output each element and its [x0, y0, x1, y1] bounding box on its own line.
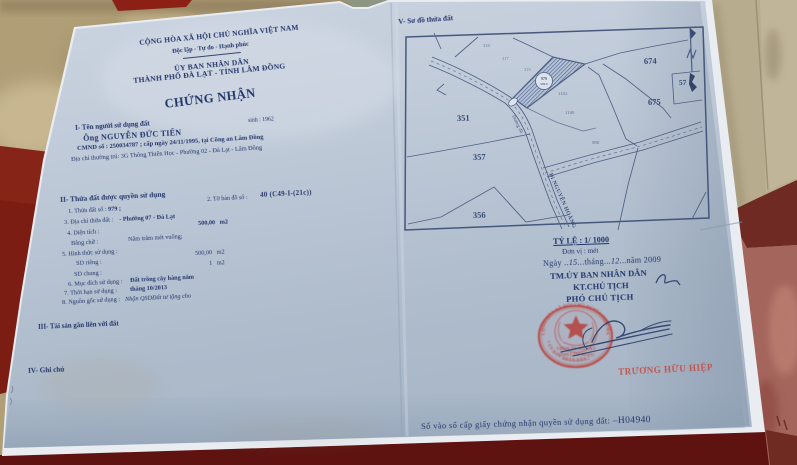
svg-text:675: 675 [648, 97, 661, 107]
svg-text:351: 351 [457, 113, 470, 123]
svg-text:979: 979 [541, 77, 547, 81]
svg-text:318: 318 [483, 43, 491, 48]
svg-text:1100: 1100 [565, 111, 575, 116]
svg-text:500.0: 500.0 [540, 82, 548, 86]
svg-text:356: 356 [473, 210, 486, 220]
svg-text:319: 319 [524, 67, 532, 72]
svg-text:1103: 1103 [558, 92, 568, 97]
svg-text:317: 317 [502, 56, 510, 61]
svg-text:57: 57 [679, 78, 687, 87]
svg-text:357: 357 [473, 152, 487, 162]
svg-text:674: 674 [644, 56, 658, 66]
svg-text:980: 980 [592, 141, 600, 146]
